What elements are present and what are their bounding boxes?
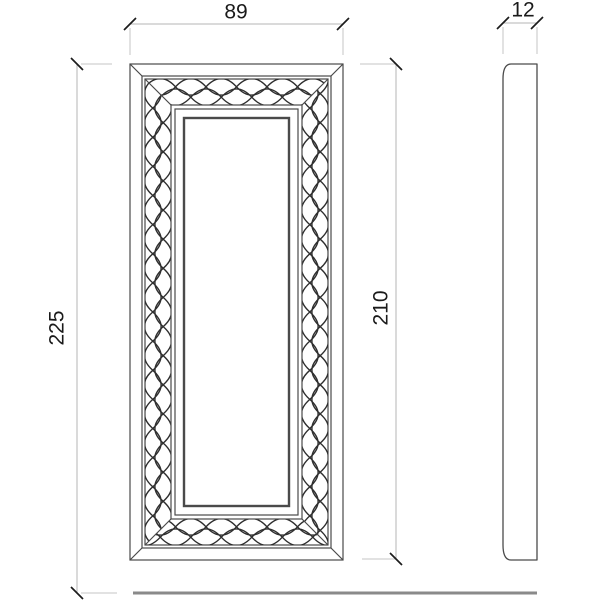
lattice-band-bottom [130, 519, 343, 546]
dimension-overall-height-225 [71, 58, 117, 599]
extension-lines-depth [503, 27, 537, 54]
lattice-strand [145, 519, 328, 536]
lattice-strand [312, 64, 329, 559]
dimension-label-overall-height: 225 [47, 310, 68, 345]
lattice-band-left [145, 64, 172, 559]
lattice-strand [130, 529, 343, 546]
lattice-strand [302, 79, 319, 545]
front-view [130, 64, 343, 560]
mirror-opening-edge [184, 118, 289, 506]
lattice-strand [312, 64, 329, 559]
dimension-label-width: 89 [224, 2, 247, 23]
lattice-strand [145, 79, 328, 96]
side-profile-outline [503, 64, 537, 560]
lattice-strand [130, 89, 343, 106]
technical-drawing-canvas: 89 12 225 210 [0, 0, 600, 600]
side-view [503, 64, 537, 560]
dimension-width-89 [124, 18, 349, 55]
extension-lines-width [130, 28, 343, 55]
lattice-outer-border [145, 79, 328, 545]
extension-lines-overall-height [81, 64, 117, 593]
dimension-depth-12 [497, 17, 543, 54]
lattice-strand [145, 79, 162, 545]
lattice-band-top [130, 79, 343, 106]
lattice-strand [130, 89, 343, 106]
lattice-strand [130, 529, 343, 546]
lattice-band-right [302, 64, 329, 559]
lattice-strand [155, 64, 172, 559]
lattice-miter-lines [145, 79, 328, 545]
inner-fillet-line [175, 109, 298, 515]
dimension-label-frame-height: 210 [371, 290, 392, 325]
lattice-inner-border [171, 105, 302, 519]
mirror-technical-drawing [0, 0, 600, 600]
lattice-strand [155, 64, 172, 559]
dimension-label-depth: 12 [511, 0, 534, 21]
